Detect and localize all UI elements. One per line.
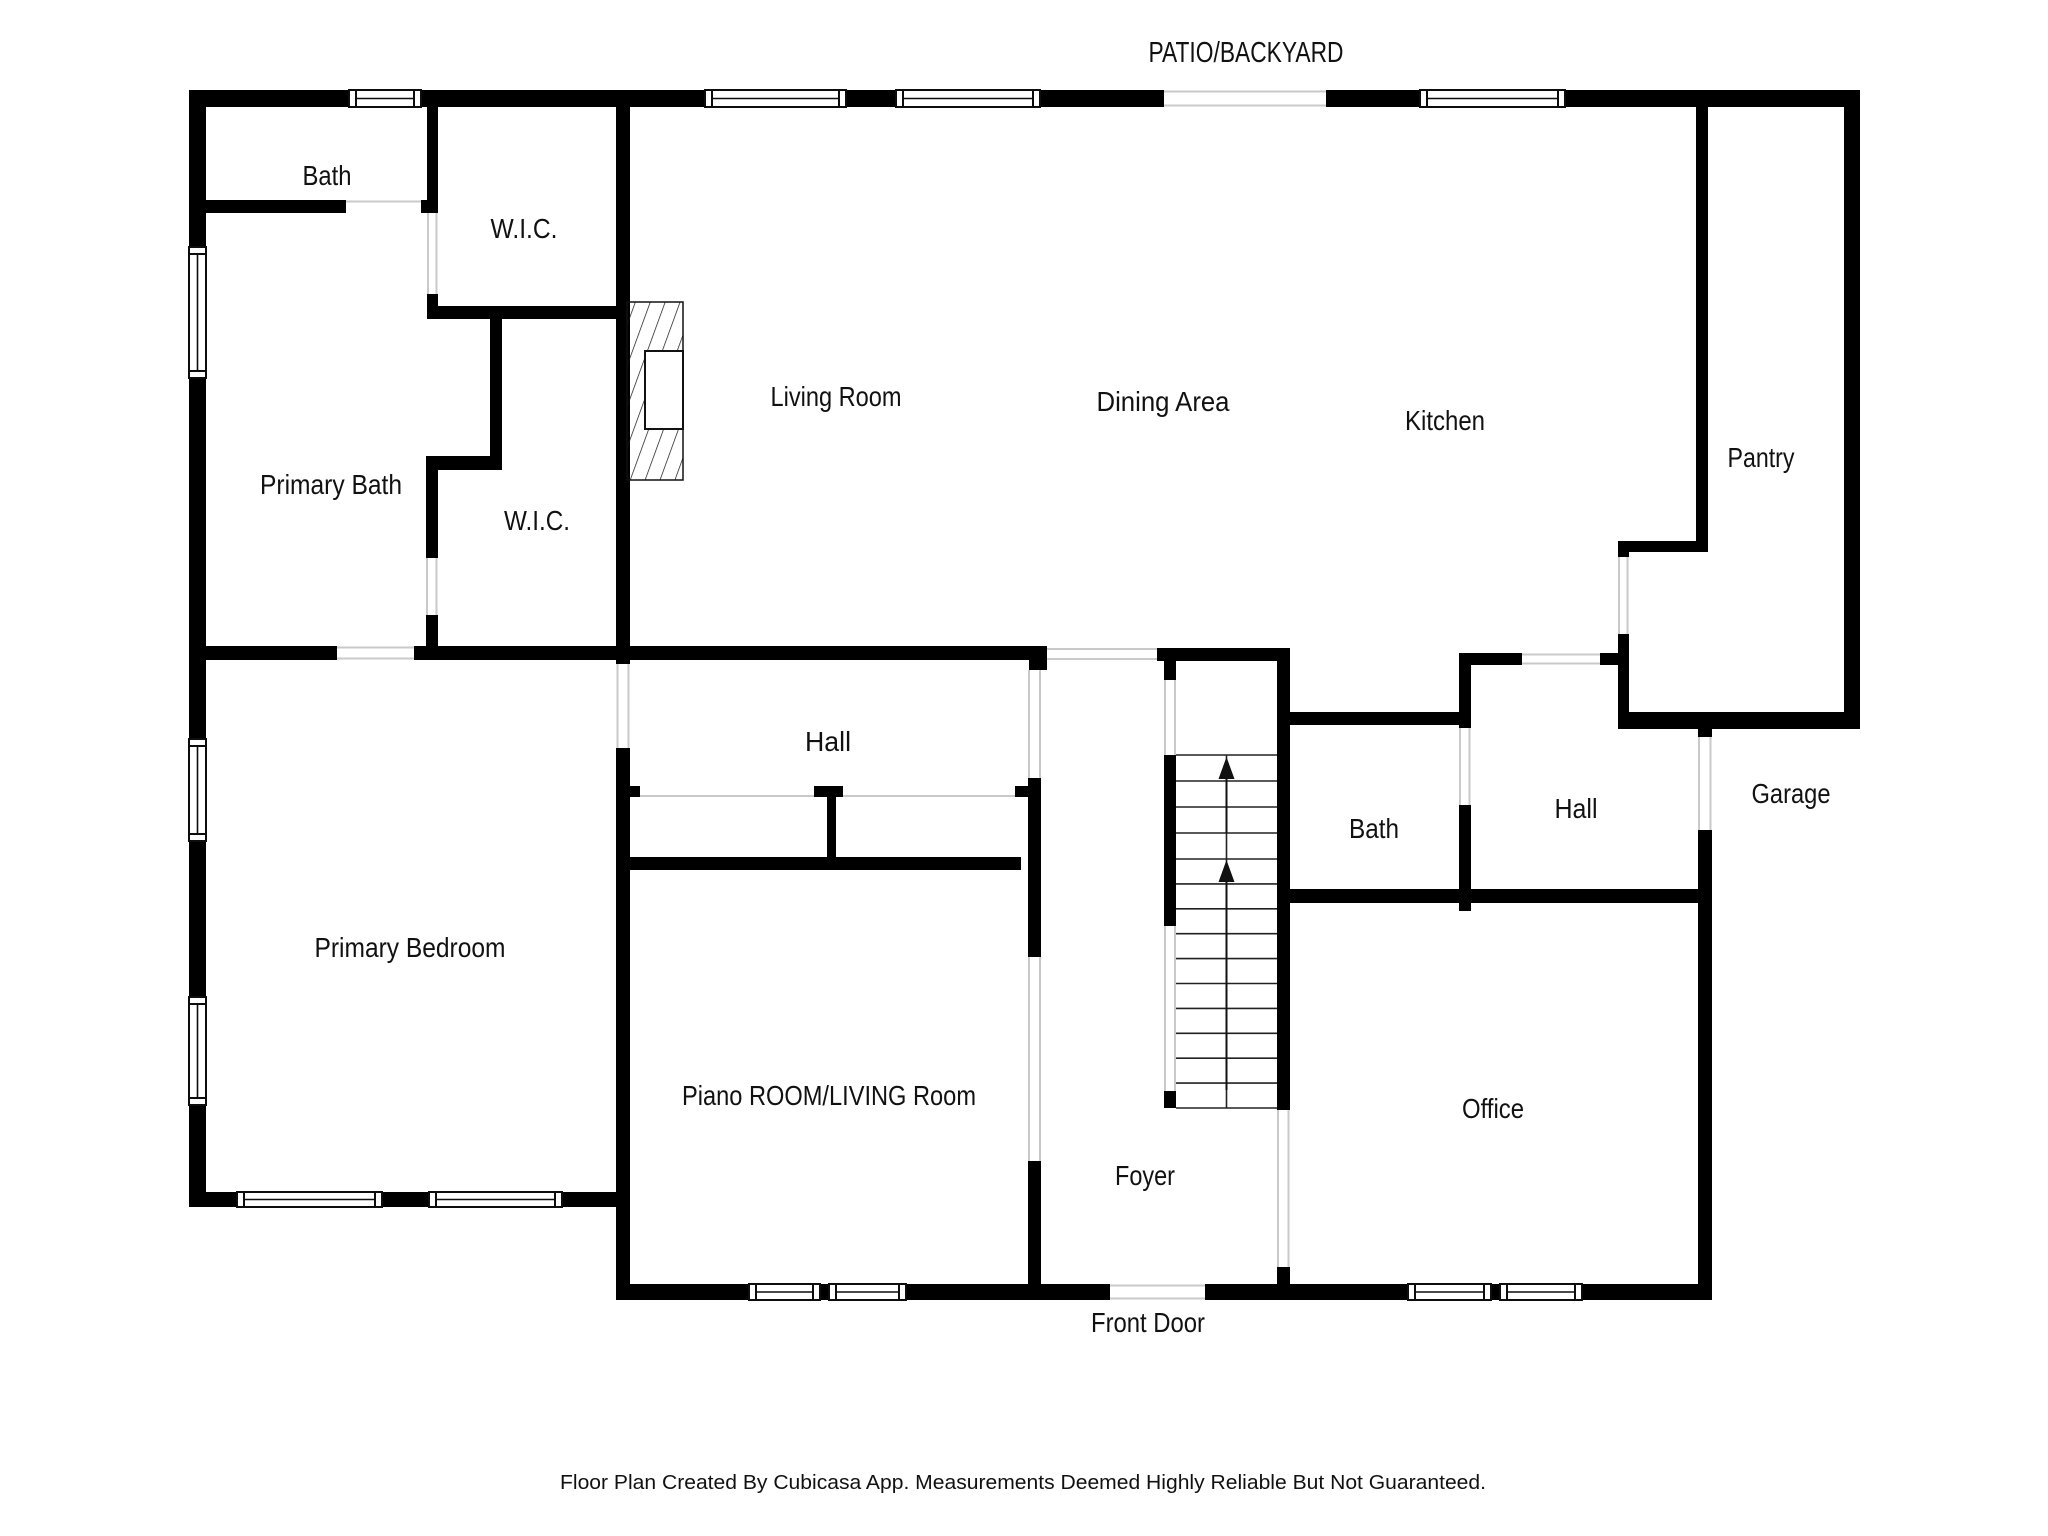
- svg-text:PATIO/BACKYARD: PATIO/BACKYARD: [1149, 37, 1344, 69]
- svg-text:Living Room: Living Room: [771, 381, 902, 412]
- svg-text:Foyer: Foyer: [1115, 1160, 1175, 1191]
- svg-text:Primary Bath: Primary Bath: [260, 469, 402, 500]
- svg-text:Bath: Bath: [303, 160, 352, 191]
- svg-text:Kitchen: Kitchen: [1405, 405, 1485, 436]
- svg-text:Dining Area: Dining Area: [1097, 386, 1230, 417]
- svg-text:Bath: Bath: [1349, 813, 1399, 844]
- svg-text:Floor Plan Created By Cubicasa: Floor Plan Created By Cubicasa App. Meas…: [560, 1472, 1486, 1494]
- svg-text:Hall: Hall: [1555, 793, 1598, 824]
- svg-text:Pantry: Pantry: [1728, 442, 1795, 473]
- svg-text:Piano ROOM/LIVING Room: Piano ROOM/LIVING Room: [682, 1080, 976, 1111]
- svg-text:W.I.C.: W.I.C.: [504, 505, 570, 536]
- svg-text:Office: Office: [1462, 1093, 1524, 1124]
- svg-text:W.I.C.: W.I.C.: [491, 213, 558, 244]
- svg-text:Garage: Garage: [1752, 778, 1831, 809]
- svg-text:Hall: Hall: [805, 726, 851, 757]
- svg-text:Primary Bedroom: Primary Bedroom: [315, 932, 506, 963]
- svg-text:Front Door: Front Door: [1091, 1307, 1205, 1338]
